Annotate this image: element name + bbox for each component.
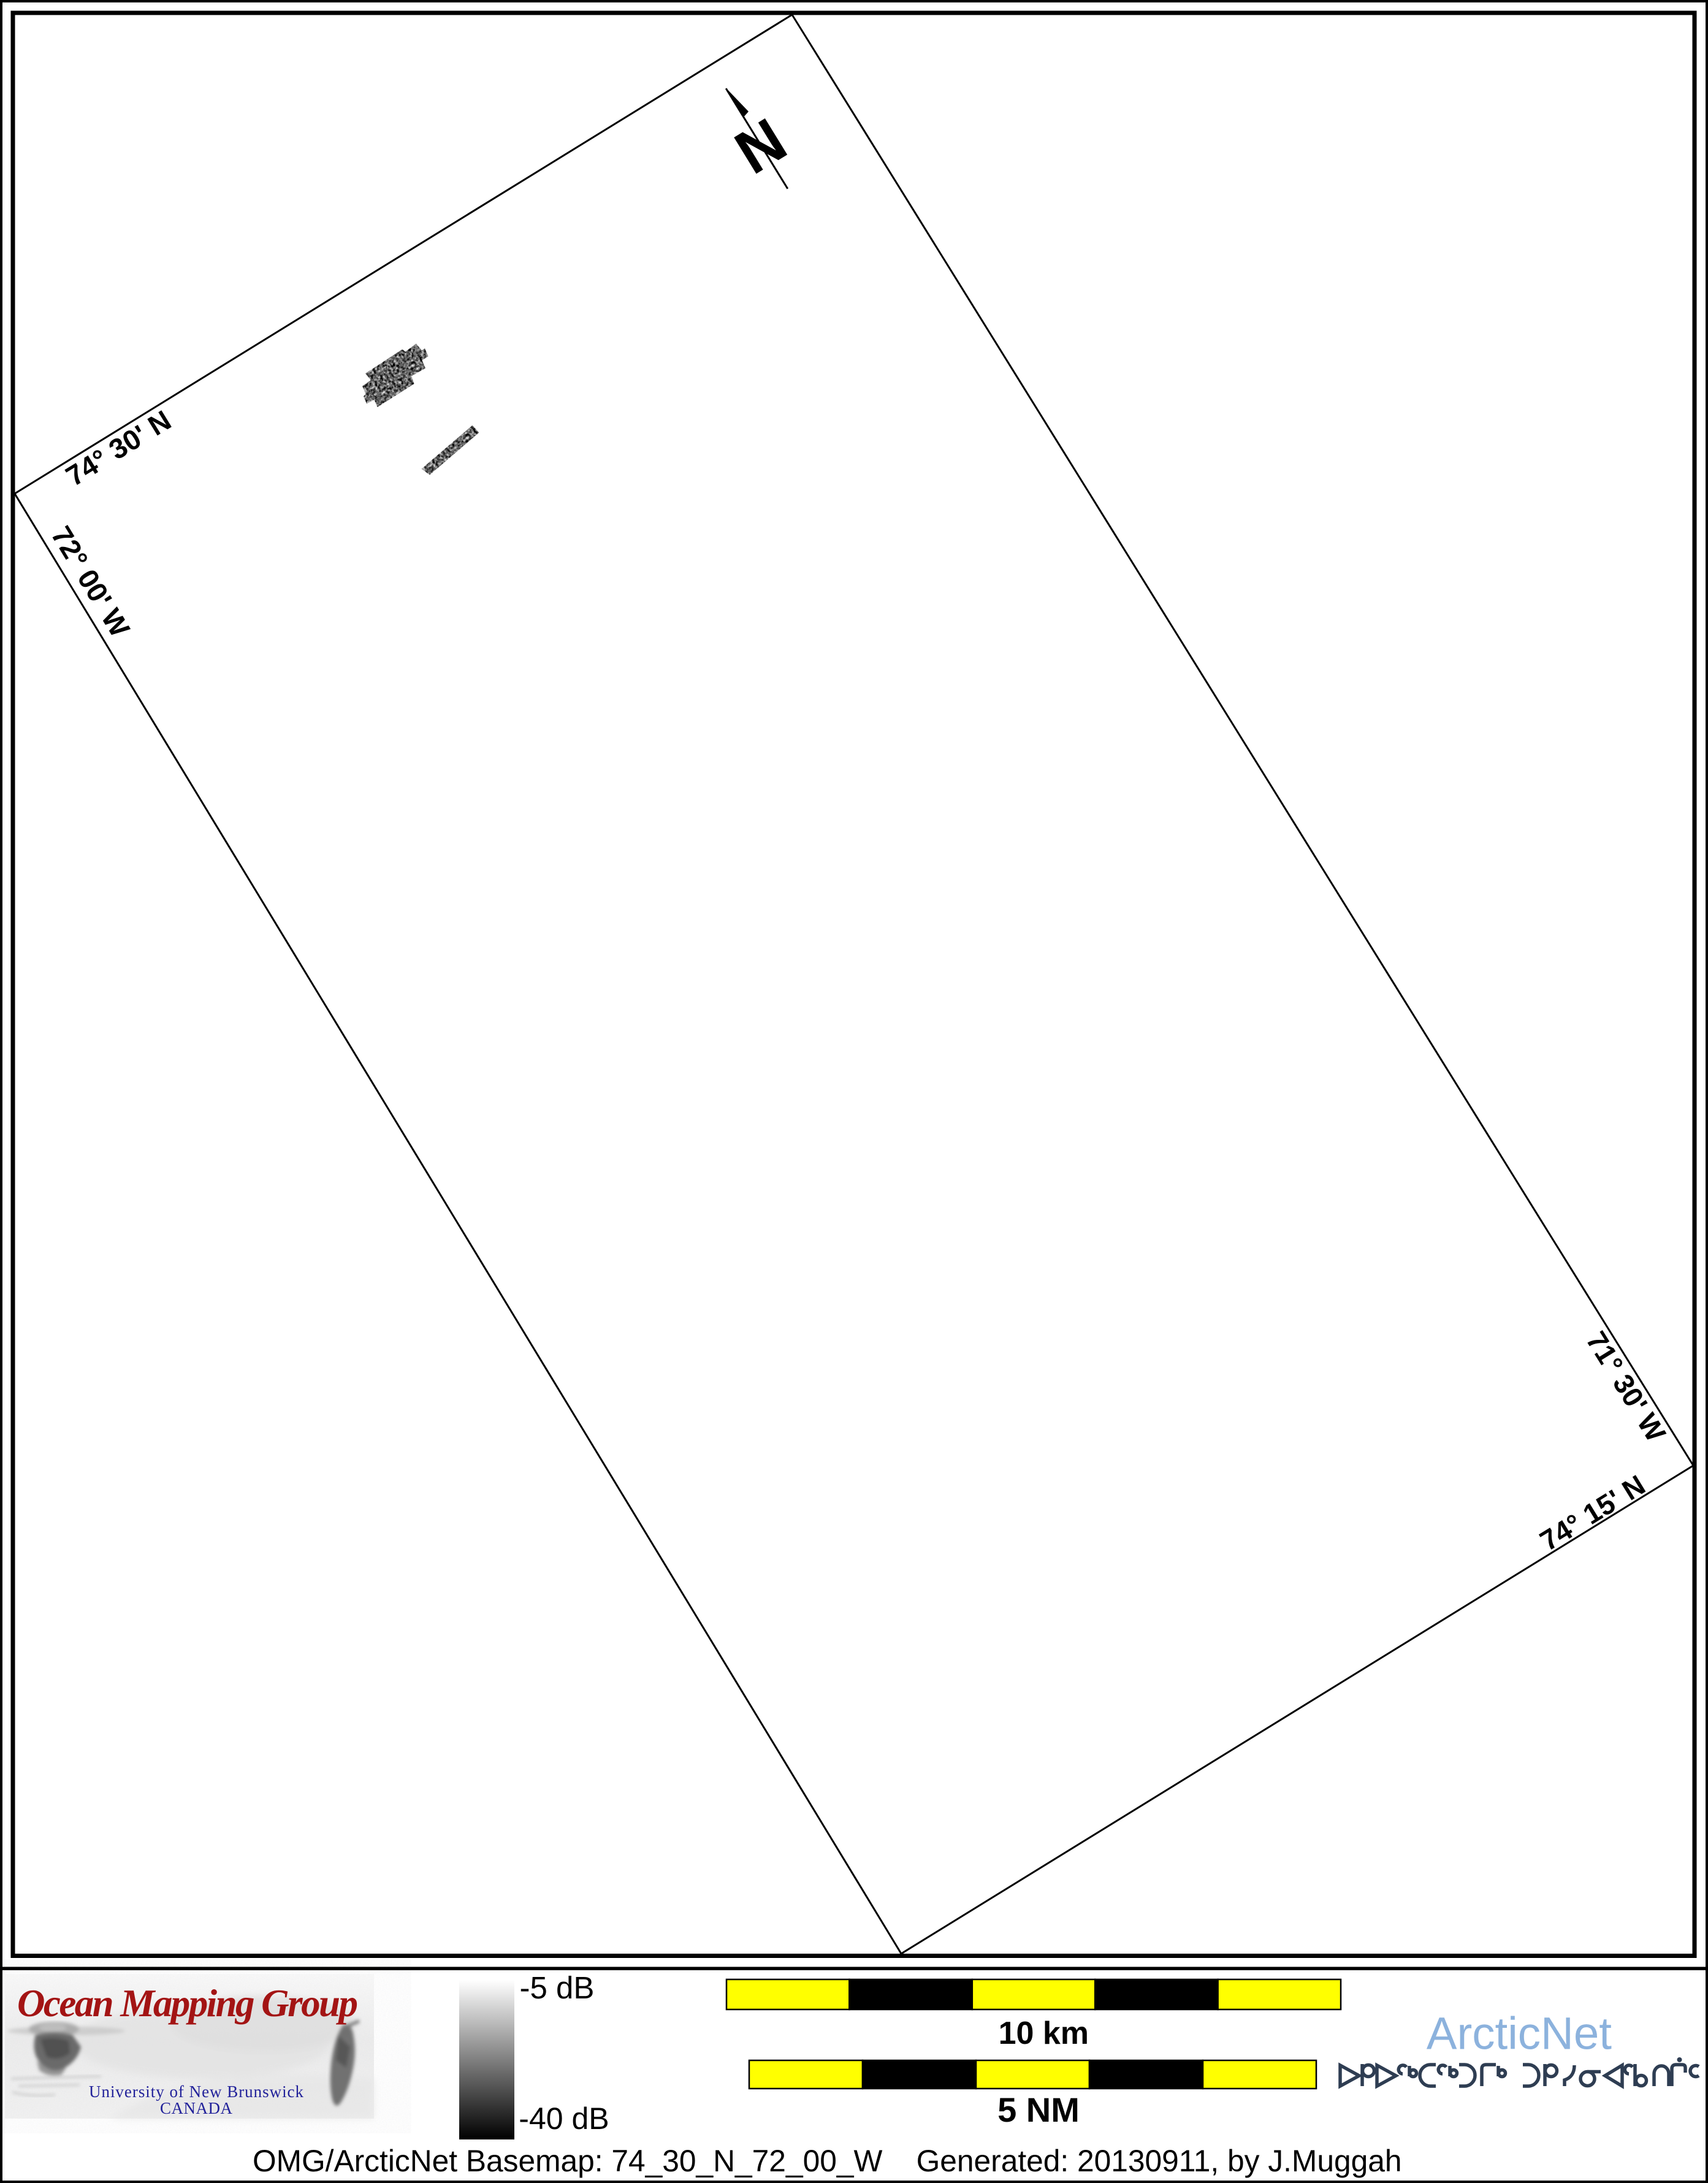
svg-text:-40 dB: -40 dB: [519, 2101, 609, 2136]
svg-text:University of New Brunswick: University of New Brunswick: [89, 2082, 304, 2101]
svg-text:-5 dB: -5 dB: [520, 1970, 595, 2005]
svg-text:CANADA: CANADA: [160, 2099, 233, 2117]
svg-text:10 km: 10 km: [999, 2016, 1089, 2051]
svg-text:Ocean Mapping Group: Ocean Mapping Group: [17, 1982, 358, 2025]
svg-text:OMG/ArcticNet Basemap: 74_30_N: OMG/ArcticNet Basemap: 74_30_N_72_00_W G…: [253, 2144, 1402, 2178]
svg-text:5 NM: 5 NM: [997, 2090, 1080, 2129]
svg-text:ArcticNet: ArcticNet: [1427, 2008, 1612, 2059]
